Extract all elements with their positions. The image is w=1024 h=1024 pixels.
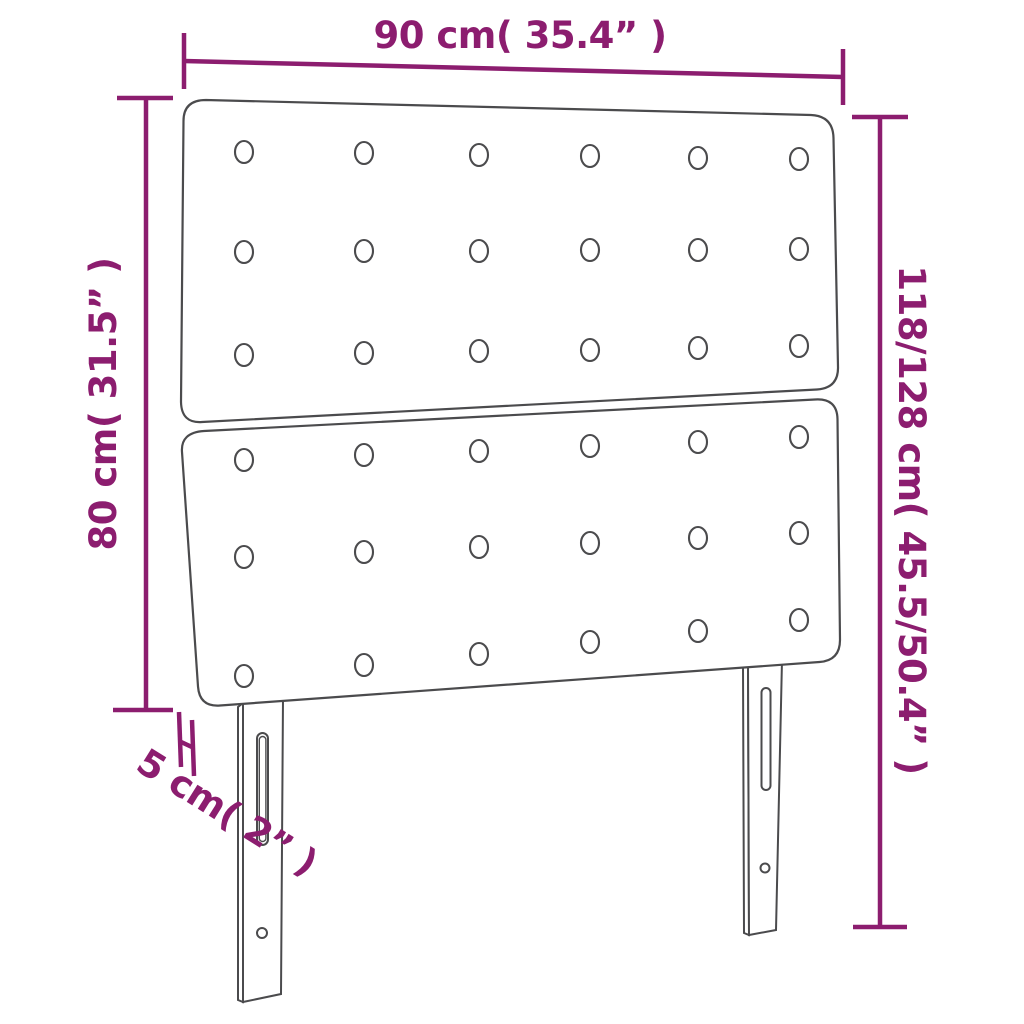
tufting-button bbox=[689, 239, 707, 261]
tufting-button bbox=[355, 142, 373, 164]
tufting-button bbox=[355, 240, 373, 262]
tufting-button bbox=[235, 665, 253, 687]
tufting-button bbox=[581, 631, 599, 653]
width-dimension-label: 90 cm( 35.4” ) bbox=[373, 14, 666, 57]
headboard-outline bbox=[181, 100, 840, 706]
right-leg-slot bbox=[762, 688, 771, 790]
diagram-canvas: 90 cm( 35.4” ) 80 cm( 31.5” ) 118/128 cm… bbox=[0, 0, 1024, 1024]
tufting-button bbox=[470, 440, 488, 462]
tufting-button bbox=[790, 522, 808, 544]
tufting-button bbox=[235, 546, 253, 568]
width-dimension: 90 cm( 35.4” ) bbox=[184, 14, 843, 105]
tufting-button bbox=[470, 240, 488, 262]
tufting-button bbox=[790, 609, 808, 631]
headboard-dimension-diagram: 90 cm( 35.4” ) 80 cm( 31.5” ) 118/128 cm… bbox=[0, 0, 1024, 1024]
tufting-button bbox=[470, 144, 488, 166]
tufting-button bbox=[235, 141, 253, 163]
tufting-button bbox=[581, 339, 599, 361]
right-leg bbox=[743, 660, 782, 935]
tufting-button bbox=[470, 340, 488, 362]
tufting-button bbox=[581, 532, 599, 554]
tufting-button bbox=[355, 541, 373, 563]
headboard-upper-panel bbox=[181, 100, 838, 422]
tufting-button bbox=[790, 335, 808, 357]
tufting-button bbox=[581, 435, 599, 457]
thickness-dimension-label: 5 cm( 2” ) bbox=[129, 740, 325, 884]
tufting-button bbox=[689, 147, 707, 169]
tufting-button bbox=[581, 239, 599, 261]
tufting-button bbox=[581, 145, 599, 167]
left-height-dimension-label: 80 cm( 31.5” ) bbox=[82, 257, 125, 550]
right-leg-screw-hole bbox=[761, 864, 770, 873]
tufting-button bbox=[790, 148, 808, 170]
left-leg-screw-hole bbox=[257, 928, 267, 938]
tufting-button bbox=[689, 337, 707, 359]
tufting-button bbox=[689, 431, 707, 453]
tufting-button bbox=[235, 344, 253, 366]
headboard-lower-panel bbox=[182, 399, 840, 705]
tufting-button bbox=[355, 444, 373, 466]
tufting-button bbox=[470, 643, 488, 665]
tufting-button bbox=[235, 241, 253, 263]
tufting-button bbox=[470, 536, 488, 558]
tufting-button bbox=[689, 620, 707, 642]
left-height-dimension: 80 cm( 31.5” ) bbox=[82, 98, 173, 710]
width-dimension-line bbox=[184, 61, 843, 77]
tufting-button bbox=[355, 654, 373, 676]
thickness-dimension: 5 cm( 2” ) bbox=[129, 712, 325, 885]
tufting-button bbox=[790, 238, 808, 260]
tufting-button bbox=[689, 527, 707, 549]
right-height-dimension-label: 118/128 cm( 45.5/50.4” ) bbox=[890, 265, 933, 774]
tufting-button bbox=[355, 342, 373, 364]
right-height-dimension: 118/128 cm( 45.5/50.4” ) bbox=[852, 117, 933, 927]
tufting-button bbox=[235, 449, 253, 471]
tufting-button bbox=[790, 426, 808, 448]
